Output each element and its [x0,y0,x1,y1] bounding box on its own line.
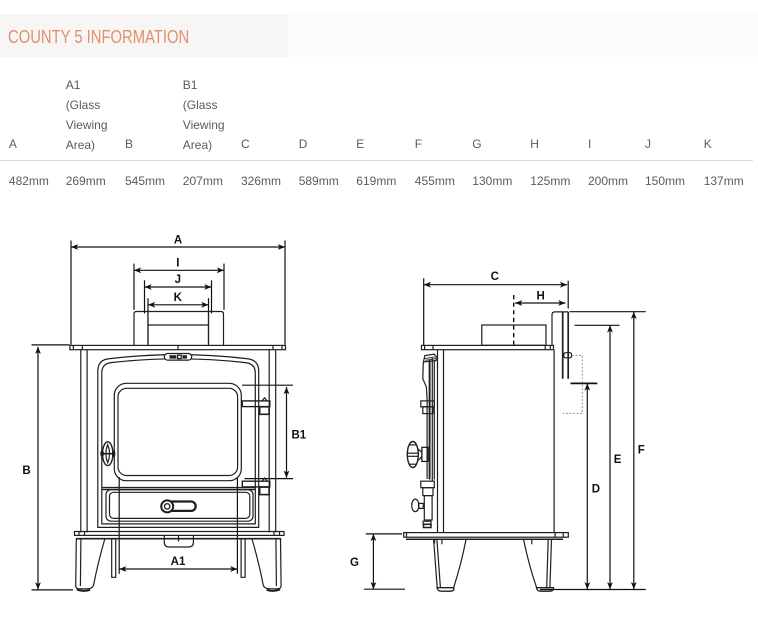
svg-text:D: D [592,484,600,496]
svg-text:I: I [176,258,179,270]
svg-text:B: B [22,465,30,477]
svg-text:H: H [536,291,544,303]
svg-text:G: G [350,557,359,569]
svg-text:B1: B1 [292,430,307,442]
svg-text:K: K [174,292,183,304]
svg-text:A: A [174,235,182,247]
svg-text:E: E [614,454,622,466]
svg-text:F: F [638,444,645,456]
svg-text:J: J [175,274,181,286]
svg-text:C: C [491,271,499,283]
svg-text:A1: A1 [171,556,186,568]
